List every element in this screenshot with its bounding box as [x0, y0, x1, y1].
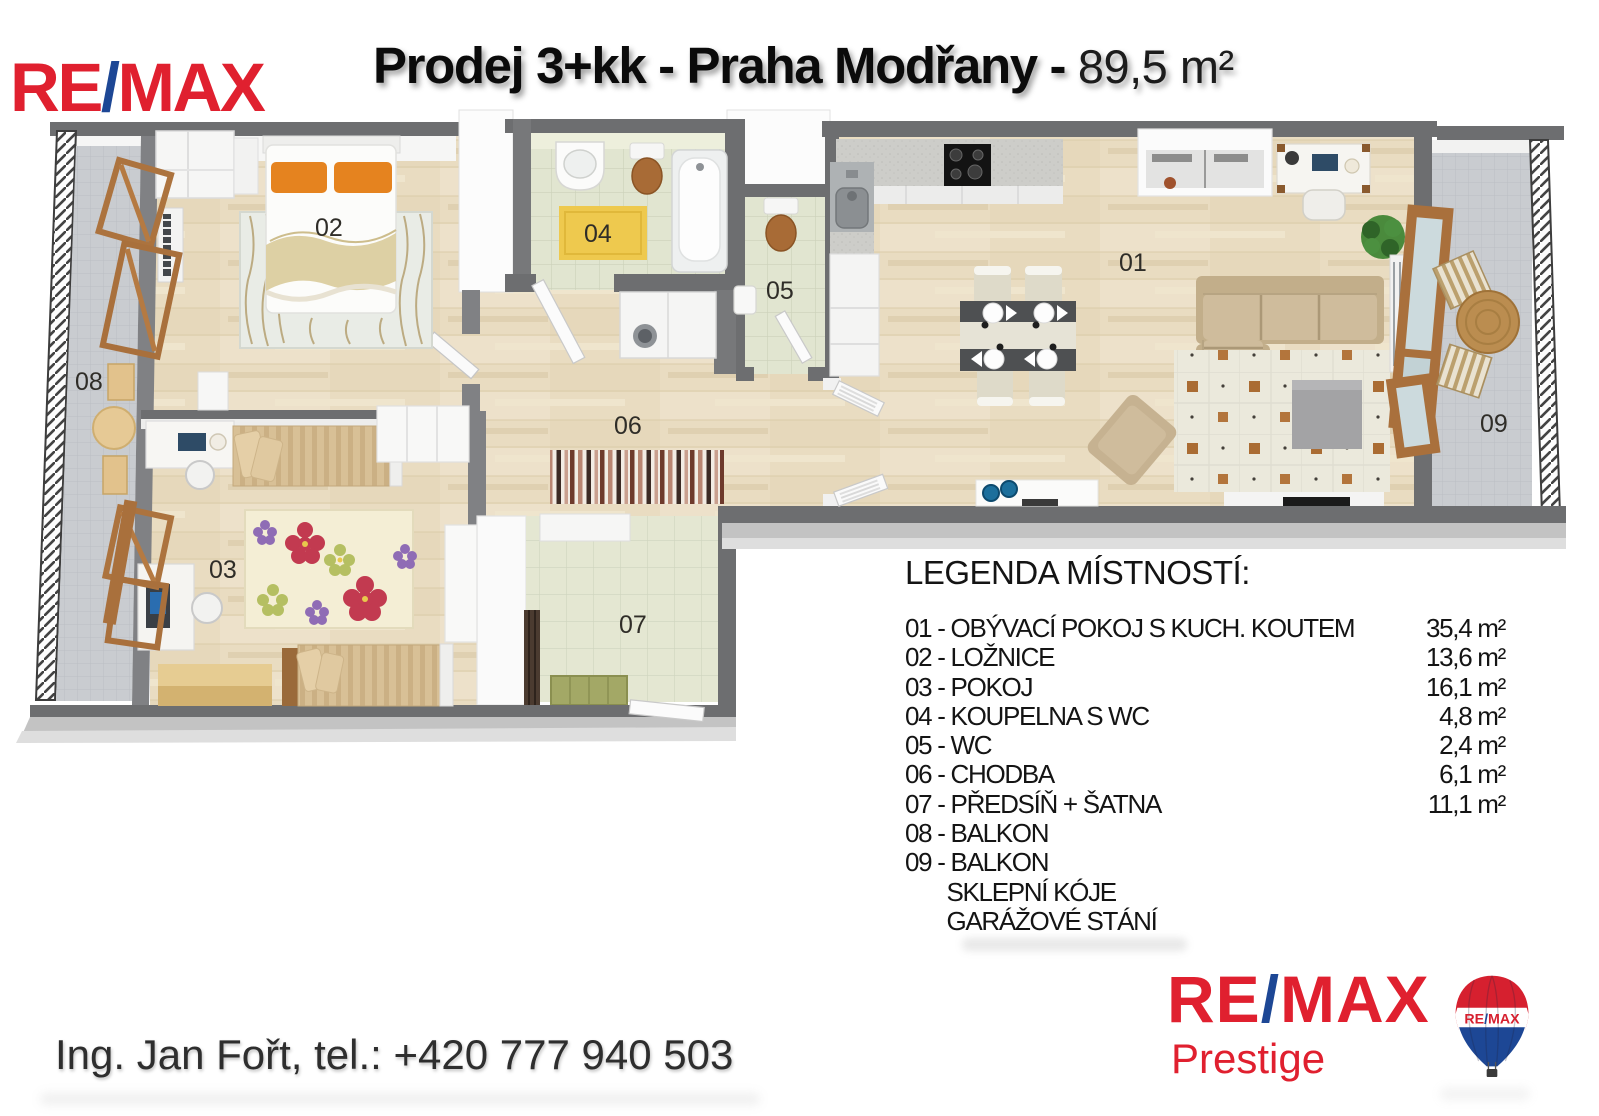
svg-text:05: 05: [766, 277, 794, 305]
svg-text:04: 04: [584, 220, 612, 248]
svg-text:02: 02: [315, 214, 343, 242]
svg-text:08: 08: [75, 368, 103, 396]
svg-text:06: 06: [614, 412, 642, 440]
svg-text:09: 09: [1480, 410, 1508, 438]
svg-text:RE/MAX: RE/MAX: [1464, 1012, 1520, 1028]
svg-text:07: 07: [619, 611, 647, 639]
svg-text:01: 01: [1119, 249, 1147, 277]
svg-text:03: 03: [209, 556, 237, 584]
